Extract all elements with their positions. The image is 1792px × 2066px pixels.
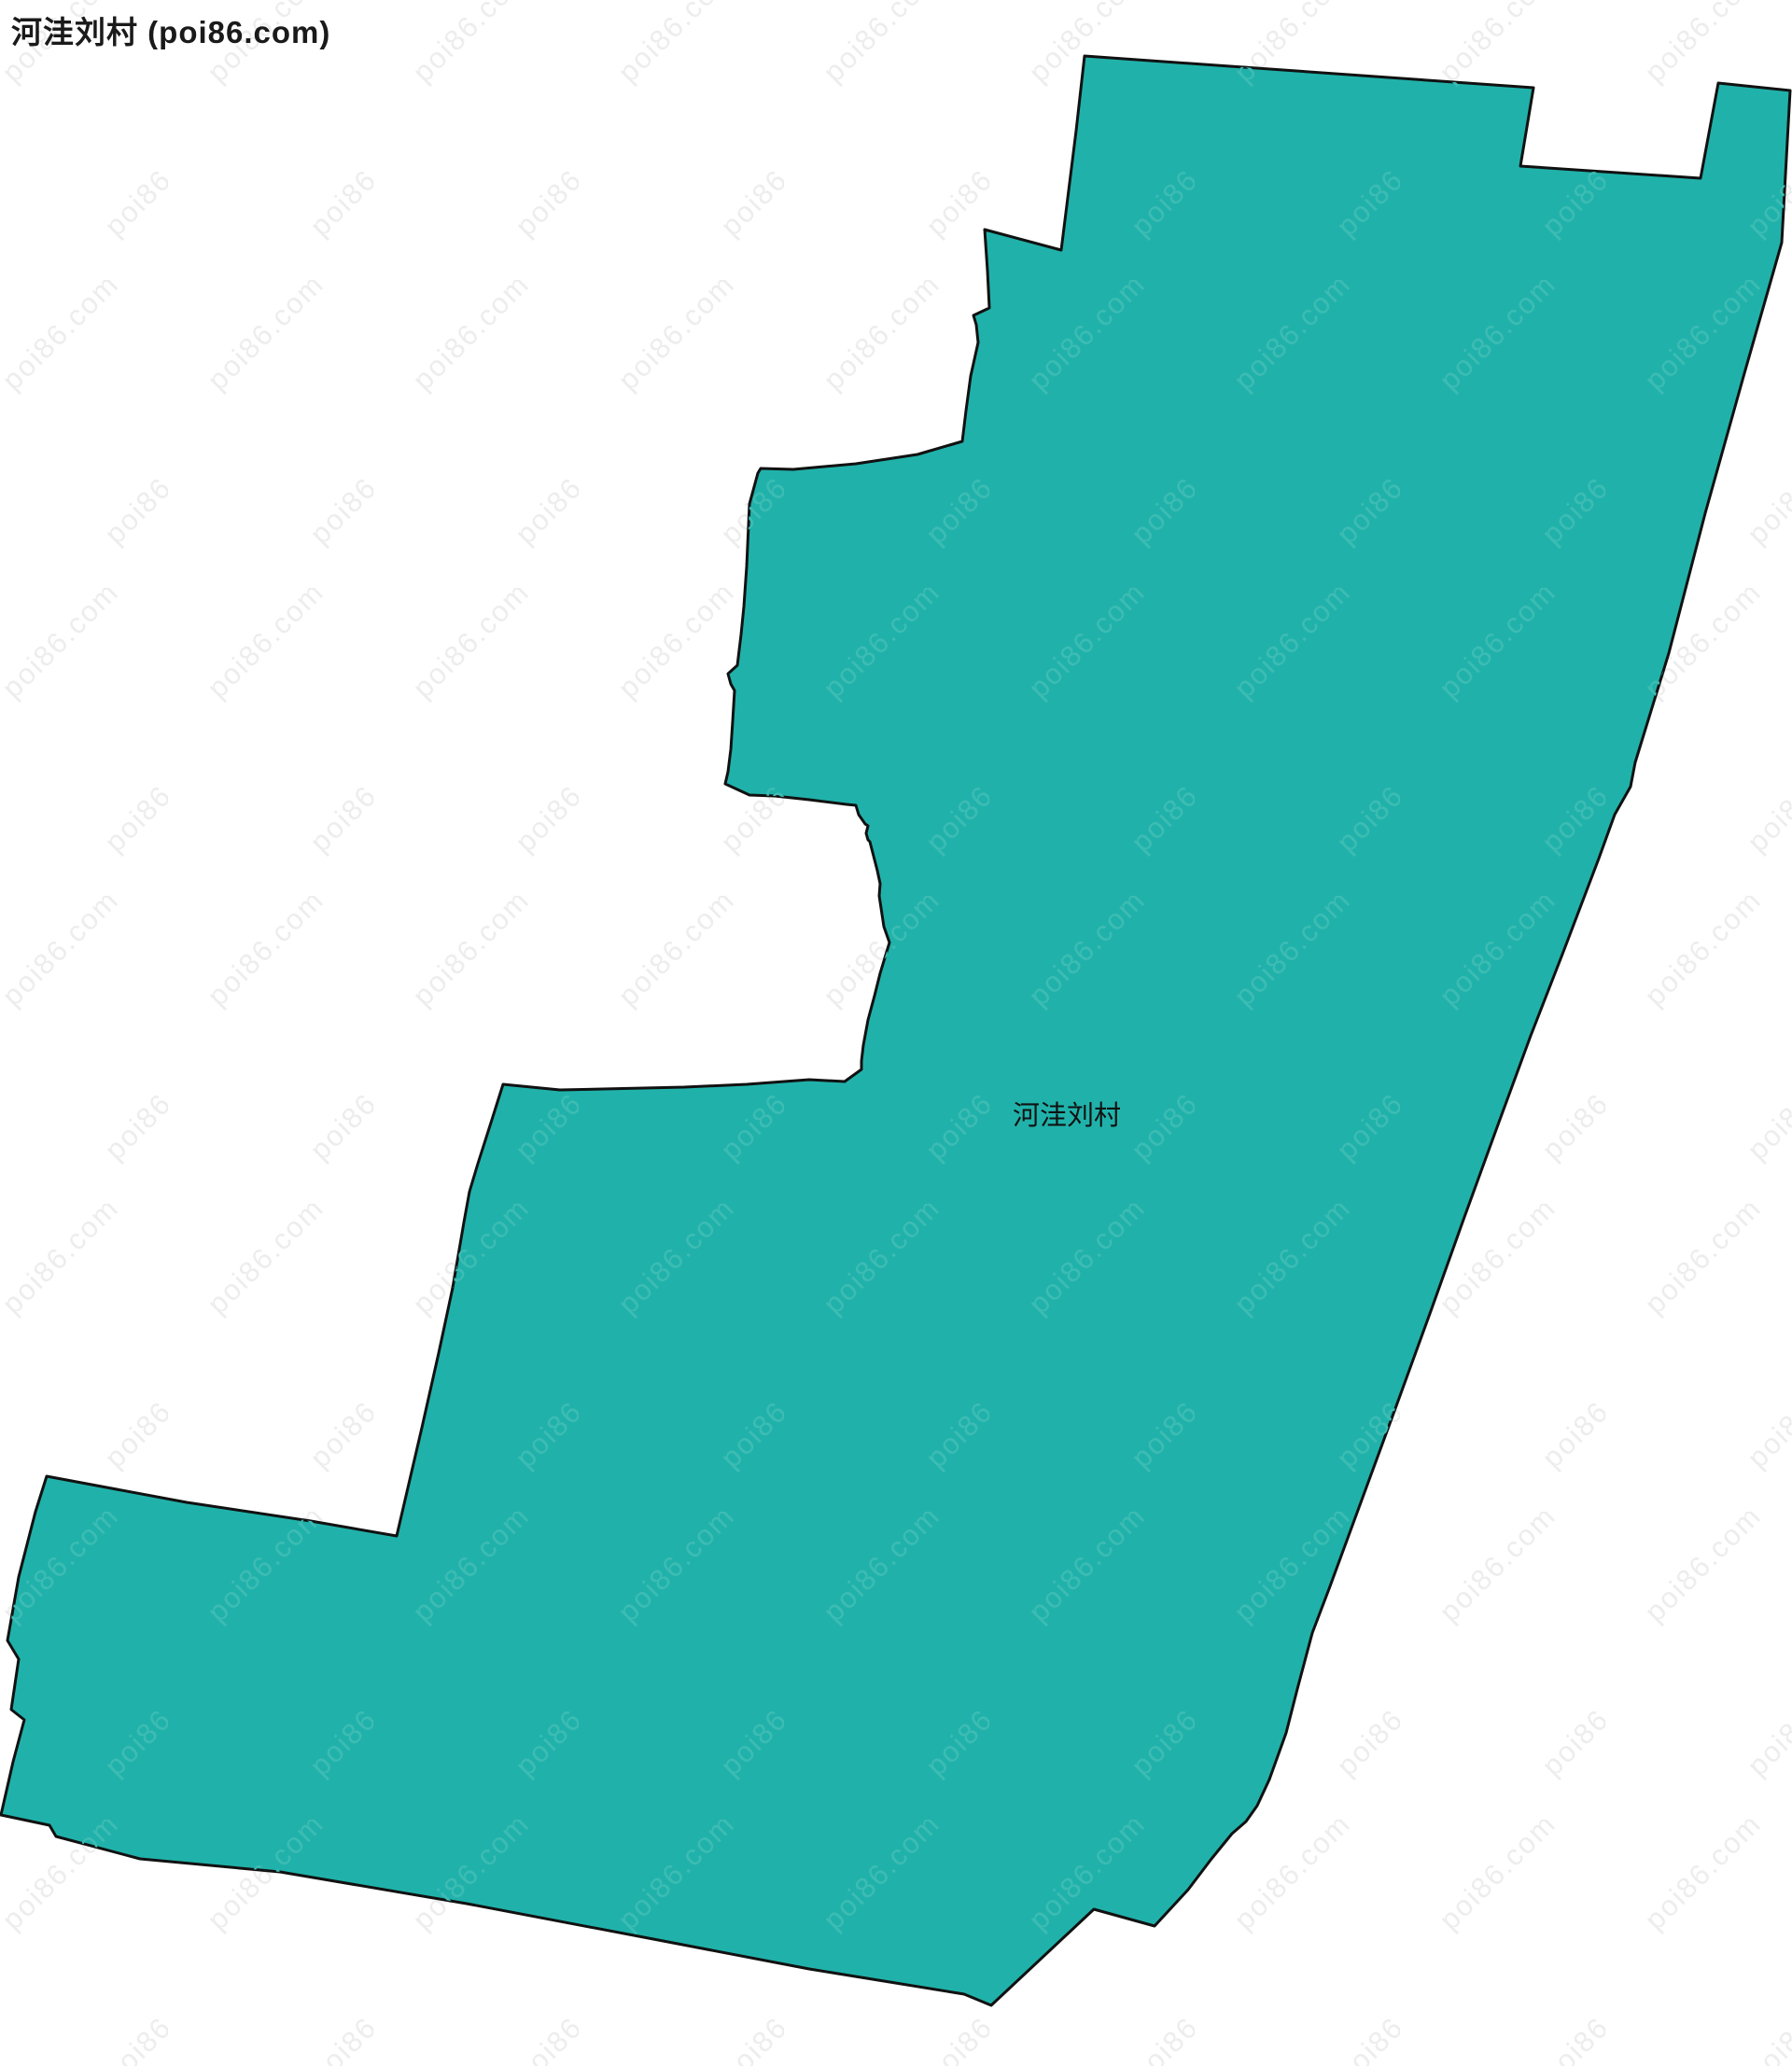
page-title: 河洼刘村 (poi86.com) bbox=[11, 7, 330, 52]
map-canvas: poi86.com poi86.com poi86.com poi86.com … bbox=[0, 0, 1792, 2066]
map-container: poi86.com poi86.com poi86.com poi86.com … bbox=[0, 0, 1792, 2066]
village-label: 河洼刘村 bbox=[1013, 1100, 1121, 1131]
